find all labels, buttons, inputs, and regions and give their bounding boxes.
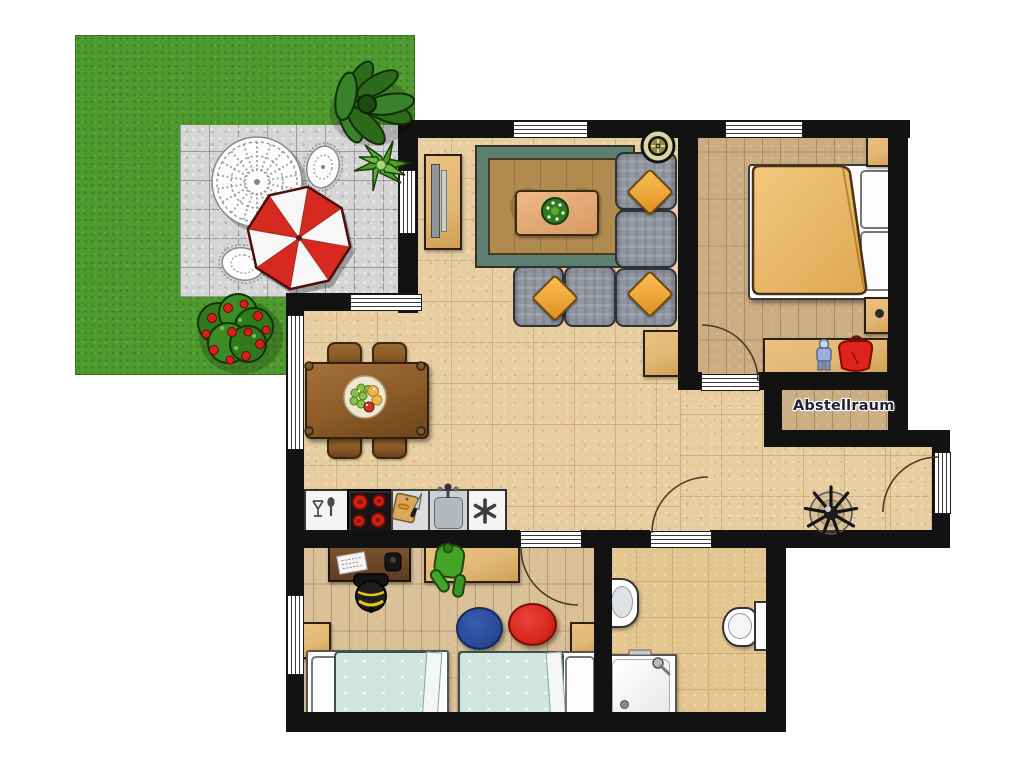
wall-bedroom-south-b [758,372,908,390]
sink-basin [434,497,463,529]
sofa-cushion [615,210,677,268]
terrace-door [350,294,422,311]
storage-room-label: Abstellraum [793,398,895,414]
sink-bowl [611,586,633,618]
floorplan-canvas: Abstellraum [0,0,1024,768]
shower-drain [620,700,629,709]
garden-patio [180,125,402,297]
round-rug-blue [456,607,503,650]
kids-bench [424,546,520,583]
living-room-cabinet [643,330,680,377]
coffee-table [515,190,599,236]
nightstand-knob [875,309,884,318]
window-kids-west [287,595,304,675]
tv-screen [431,164,440,238]
kids-bed-pillow [565,656,595,717]
wall-bedroom-south-a [678,372,702,390]
wall-bath-east [766,548,786,712]
window-bedroom-north [725,121,803,138]
window-living-north [513,121,588,138]
wall-kids-bath-divider [594,548,612,712]
toilet-seat [728,613,752,639]
wall-hall-south-a [286,530,520,548]
door-sill-kids-room [520,531,582,548]
window-dining-west [287,315,304,450]
door-sill-bedroom [701,374,760,391]
wall-hall-south-c [710,530,950,548]
dining-table [305,362,429,439]
wall-living-bedroom-divider [678,138,698,390]
wall-storage-south [764,430,950,447]
window-living-west [399,170,416,234]
wall-hall-south-b [580,530,650,548]
wall-storage-west [764,390,782,430]
kids-desk [328,545,411,582]
wall-north [398,120,910,138]
door-sill-bathroom [650,531,712,548]
round-rug-red [508,603,557,646]
front-door-sill [934,452,951,514]
wall-south [286,712,786,732]
tv-screen-highlight [441,170,447,232]
